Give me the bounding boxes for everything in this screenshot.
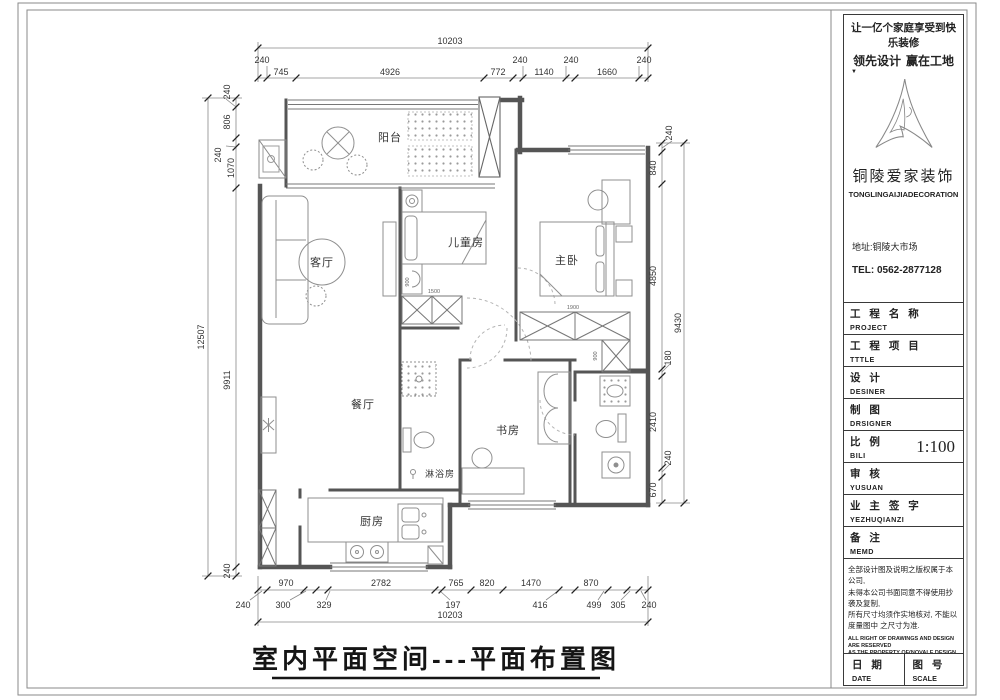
dim-label: 4926 — [380, 67, 400, 77]
field-label-en: MEMD — [850, 547, 957, 556]
sheet-number-cell: 图 号 SCALE — [904, 654, 964, 685]
shower-room-fixtures — [402, 362, 436, 479]
date-label-cn: 日 期 — [852, 657, 904, 672]
room-label-children: 儿童房 — [448, 235, 484, 249]
field-label-en: YEZHUQIANZI — [850, 515, 957, 524]
sheet-no-label-cn: 图 号 — [913, 657, 964, 672]
company-name-en: TONGLINGAIJIADECORATION — [844, 190, 963, 199]
dim-label: 840 — [648, 160, 658, 175]
field-label-en: DRSIGNER — [850, 419, 957, 428]
field-row-drafter: 制 图 DRSIGNER — [844, 398, 963, 430]
dim-left-total: 12507 — [196, 324, 206, 349]
dim-label: 329 — [316, 600, 331, 610]
dim-label: 180 — [663, 350, 673, 365]
dim-label: 240 — [512, 55, 527, 65]
field-row-owner-signature: 业 主 签 字 YEZHUQIANZI — [844, 494, 963, 526]
dim-label: 240 — [563, 55, 578, 65]
kitchen-furniture — [308, 498, 443, 564]
dim-label: 1140 — [534, 67, 553, 77]
dimension-labels-top: 10203 240 745 4926 772 240 1140 240 1660… — [254, 36, 651, 77]
room-label-living: 客厅 — [310, 255, 334, 269]
note-en-line: ALL RIGHT OF DRAWINGS AND DESIGN ARE RES… — [848, 636, 959, 651]
dim-label: 240 — [235, 600, 250, 610]
dim-label: 240 — [636, 55, 651, 65]
room-label-dining: 餐厅 — [351, 397, 375, 411]
dim-label: 240 — [222, 563, 232, 578]
drawing-sheet: 阳台 客厅 儿童房 主卧 餐厅 书房 淋浴房 厨房 1500 900 1900 … — [0, 0, 1000, 700]
dim-label: 499 — [586, 600, 601, 610]
date-label-en: DATE — [852, 674, 904, 683]
dim-label: 772 — [490, 67, 505, 77]
field-label-en: PROJECT — [850, 323, 957, 332]
balcony-furniture — [303, 112, 472, 176]
dim-label: 240 — [641, 600, 656, 610]
company-brand: 铜陵爱家装饰 TONGLINGAIJIADECORATION — [844, 66, 963, 226]
field-label-cn: 制 图 — [850, 402, 957, 417]
field-label-cn: 设 计 — [850, 370, 957, 385]
master-wardrobe — [520, 312, 630, 372]
dim-label: 240 — [664, 125, 674, 140]
dim-label: 1070 — [226, 158, 236, 178]
note-cn-line: 全部设计图及说明之版权属于本公司, — [848, 564, 959, 587]
bathroom-fixtures — [596, 376, 630, 478]
company-slogan: 让一亿个家庭享受到快乐装修 领先设计 赢在工地 ▼ — [844, 15, 963, 66]
company-logo — [869, 76, 939, 152]
dim-label: 870 — [583, 578, 598, 588]
children-wardrobe — [402, 296, 462, 324]
room-label-master: 主卧 — [555, 254, 579, 267]
room-label-shower: 淋浴房 — [425, 468, 455, 479]
dim-label: 970 — [278, 578, 293, 588]
room-label-study: 书房 — [496, 424, 520, 437]
dim-label: 4850 — [648, 266, 658, 286]
drawing-title: 室内平面空间---平面布置图 — [252, 644, 620, 678]
dim-label: 240 — [254, 55, 269, 65]
field-row-title: 工 程 项 目 TTTLE — [844, 334, 963, 366]
tv-cabinet — [261, 397, 276, 453]
company-address: 地址:铜陵大市场 — [852, 240, 963, 253]
exterior-service-box — [259, 140, 286, 178]
room-label-kitchen: 厨房 — [360, 515, 384, 528]
dim-label: 9911 — [222, 370, 232, 389]
dimension-labels-bottom: 970 2782 765 820 1470 870 240 300 329 19… — [235, 578, 656, 620]
note-cn-line: 所有尺寸均须作实地核对, 不能以 — [848, 609, 959, 620]
room-label-balcony: 阳台 — [378, 130, 402, 144]
title-block: 让一亿个家庭享受到快乐装修 领先设计 赢在工地 ▼ 铜陵爱家装饰 TONGLIN… — [843, 14, 964, 686]
company-name-cn: 铜陵爱家装饰 — [844, 165, 963, 186]
dim-children-width: 1500 — [428, 289, 440, 295]
field-label-cn: 工 程 名 称 — [850, 306, 957, 321]
dim-children-depth: 900 — [405, 277, 411, 286]
master-furniture — [540, 180, 632, 296]
dim-label: 2410 — [648, 412, 658, 432]
dim-label: 1660 — [597, 67, 617, 77]
slogan-line1: 让一亿个家庭享受到快乐装修 — [847, 20, 960, 50]
dim-label: 416 — [532, 600, 547, 610]
dim-label: 765 — [448, 578, 463, 588]
dim-label: 240 — [213, 147, 223, 162]
field-label-cn: 业 主 签 字 — [850, 498, 957, 513]
company-tel: TEL: 0562-2877128 — [852, 265, 963, 276]
dimension-chain-left — [202, 98, 242, 576]
dimension-labels-left: 12507 240 806 240 1070 9911 240 — [196, 84, 236, 578]
field-row-designer: 设 计 DESINER — [844, 366, 963, 398]
copyright-notes: 全部设计图及说明之版权属于本公司, 未得本公司书面同意不得使用抄袭及复制, 所有… — [844, 558, 963, 653]
dim-label: 300 — [275, 600, 290, 610]
drawing-title-text: 室内平面空间---平面布置图 — [252, 644, 620, 674]
dim-right-total: 9430 — [673, 313, 683, 333]
dim-label: 670 — [648, 482, 658, 497]
titleblock-footer: 日 期 DATE 图 号 SCALE — [844, 653, 963, 685]
dim-label: 197 — [445, 600, 460, 610]
field-label-en: DESINER — [850, 387, 957, 396]
dim-master-depth: 900 — [593, 351, 599, 360]
column-hatched — [479, 97, 500, 177]
dim-label: 240 — [222, 84, 232, 99]
dimension-chain-top — [258, 42, 648, 82]
dim-label: 745 — [273, 67, 288, 77]
field-row-project: 工 程 名 称 PROJECT — [844, 302, 963, 334]
field-row-auditor: 审 核 YUSUAN — [844, 462, 963, 494]
dim-label: 305 — [610, 600, 625, 610]
dim-label: 240 — [663, 450, 673, 465]
dim-top-total: 10203 — [437, 36, 462, 46]
dim-bottom-total: 10203 — [437, 610, 462, 620]
field-label-cn: 审 核 — [850, 466, 957, 481]
dim-label: 1470 — [521, 578, 541, 588]
field-row-memo: 备 注 MEMD — [844, 526, 963, 558]
sheet-no-label-en: SCALE — [913, 674, 964, 683]
dim-label: 820 — [479, 578, 494, 588]
field-label-cn: 工 程 项 目 — [850, 338, 957, 353]
dimension-ticks-top — [255, 45, 652, 82]
field-label-cn: 备 注 — [850, 530, 957, 545]
dim-master-width: 1900 — [567, 305, 579, 311]
field-label-en: TTTLE — [850, 355, 957, 364]
note-cn-line: 未得本公司书面同意不得使用抄袭及复制, — [848, 587, 959, 610]
note-cn-line: 度量图中 之尺寸为准. — [848, 620, 959, 631]
field-row-scale: 比 例 BILI 1:100 — [844, 430, 963, 462]
dim-label: 2782 — [371, 578, 391, 588]
dim-label: 806 — [222, 114, 232, 129]
field-label-en: YUSUAN — [850, 483, 957, 492]
company-contact: 地址:铜陵大市场 TEL: 0562-2877128 — [844, 226, 963, 302]
scale-value: 1:100 — [916, 437, 955, 457]
date-cell: 日 期 DATE — [844, 654, 904, 685]
